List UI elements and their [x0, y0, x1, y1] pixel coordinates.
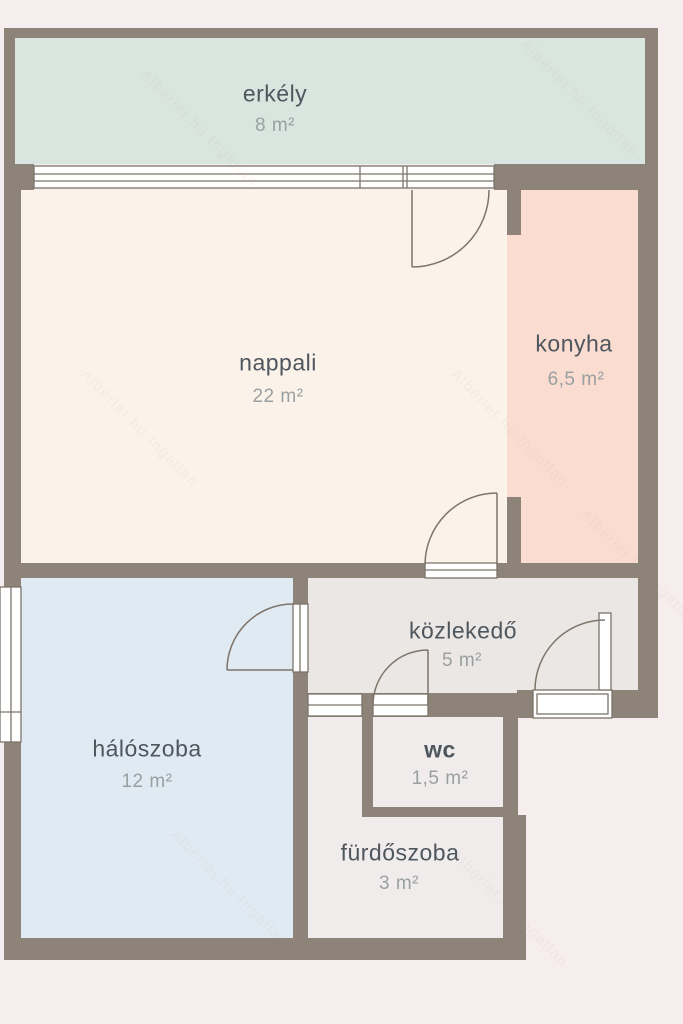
- wall-right: [638, 164, 658, 718]
- wall-konyha-stub-bottom: [507, 497, 521, 563]
- room-area-wc: 1,5 m²: [412, 768, 469, 790]
- wall-left-upper: [4, 28, 15, 164]
- wall-top: [4, 28, 658, 38]
- room-floor-nappali: [21, 190, 507, 563]
- wall-wc-left: [362, 717, 373, 817]
- entrance-door-leaf: [599, 613, 611, 690]
- wall-window-band-left: [15, 164, 34, 190]
- room-area-erkely: 8 m²: [255, 115, 295, 137]
- floor-plan-drawing: [0, 0, 683, 1024]
- room-area-furdoszoba: 3 m²: [379, 873, 419, 895]
- room-label-nappali: nappali: [239, 350, 317, 377]
- room-area-haloszoba: 12 m²: [121, 771, 172, 793]
- wall-bottom: [4, 938, 526, 960]
- wall-wc-bottom: [362, 807, 518, 817]
- room-area-konyha: 6,5 m²: [548, 369, 605, 391]
- floor-plan: erkély 8 m² nappali 22 m² konyha 6,5 m² …: [0, 0, 683, 1024]
- room-label-wc: wc: [424, 737, 456, 764]
- wall-konyha-stub-top: [507, 190, 521, 235]
- wall-wc-right: [503, 705, 518, 817]
- room-label-haloszoba: hálószoba: [92, 736, 201, 763]
- room-label-kozlekedo: közlekedő: [409, 618, 517, 645]
- wall-bath-right: [503, 815, 526, 958]
- room-label-furdoszoba: fürdőszoba: [341, 840, 460, 867]
- room-area-kozlekedo: 5 m²: [442, 650, 482, 672]
- room-area-nappali: 22 m²: [252, 386, 303, 408]
- wall-mid-right: [497, 563, 638, 578]
- wall-left: [4, 164, 21, 960]
- wall-mid-left: [4, 563, 425, 578]
- room-floor-konyha-opening: [507, 235, 521, 497]
- room-floor-erkely: [15, 38, 645, 164]
- room-floor-furdoszoba: [308, 713, 503, 938]
- entrance-door-panel: [537, 694, 608, 714]
- room-label-konyha: konyha: [535, 331, 612, 358]
- balcony-window: [34, 166, 494, 188]
- wall-window-band-right: [494, 164, 638, 190]
- room-label-erkely: erkély: [243, 81, 307, 108]
- wall-right-upper: [645, 28, 658, 164]
